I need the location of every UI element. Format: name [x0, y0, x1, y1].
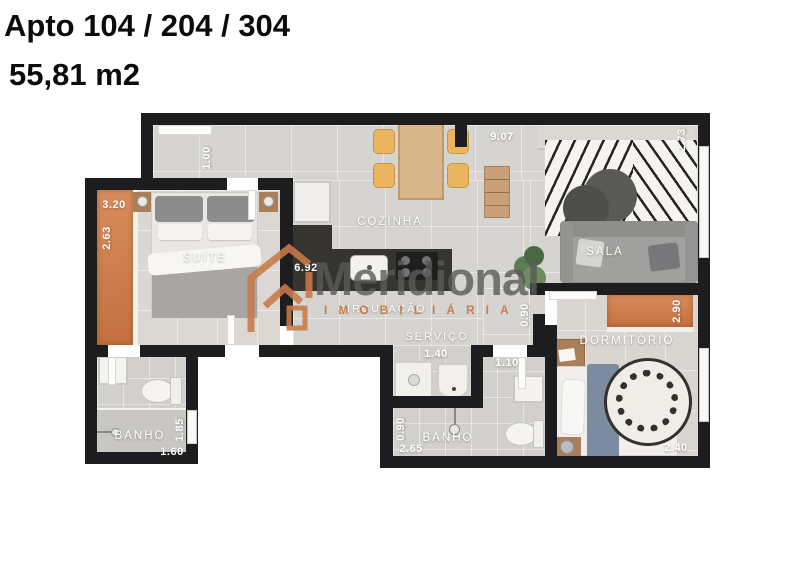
wall-laundry-inner-h	[380, 396, 483, 408]
dim-bedroom-balcony: 2.90	[671, 299, 683, 322]
room-label-kitchen: COZINHA	[357, 216, 423, 228]
shelf-line	[485, 205, 509, 206]
sofa-arm	[561, 222, 573, 282]
drain-icon	[452, 387, 456, 391]
dim-bath-social-width: 0.90	[395, 417, 407, 440]
suite-nightstand-left	[133, 192, 151, 212]
lamp-icon	[263, 196, 274, 207]
wall-suite-top	[85, 178, 293, 190]
wall-entry-left	[141, 113, 153, 180]
bed-pillow-white	[158, 224, 202, 240]
shelf-line	[485, 192, 509, 193]
watermark-tagline: IMOBILIÁRIA	[324, 303, 520, 317]
bed-pillow-dark	[155, 196, 203, 222]
dining-table	[398, 121, 444, 200]
bed-pillow-white	[208, 224, 252, 240]
suite-balcony-strip	[97, 190, 133, 345]
bedroom-balcony-glass	[607, 327, 693, 332]
rug-pattern	[616, 370, 678, 432]
suite-door-gap	[227, 178, 258, 190]
washer-door-icon	[408, 374, 420, 386]
bath-suite-door-gap	[108, 345, 140, 357]
bath-social-door-gap	[493, 345, 527, 357]
room-label-living: SALA	[586, 246, 623, 258]
bath-suite-window	[187, 410, 197, 444]
sofa-pillow	[648, 242, 681, 271]
room-label-bath-suite: BANHO	[115, 430, 166, 442]
bedroom-door-leaf	[549, 291, 597, 300]
sofa-back	[561, 222, 697, 237]
lamp-icon	[560, 440, 574, 454]
page-title: Apto 104 / 204 / 304	[4, 8, 290, 44]
lamp-icon	[137, 196, 148, 207]
wall-laundry-inner-v	[471, 345, 483, 408]
wall-bedroom-left	[545, 325, 557, 468]
bath-suite-toilet-tank	[170, 377, 182, 405]
suite-balcony-glass	[133, 190, 138, 345]
shelf-line	[485, 179, 509, 180]
bedroom-rug	[604, 358, 692, 446]
dim-living-depth: 2.73	[676, 128, 688, 151]
dim-bath-suite-length: 1.85	[174, 418, 186, 441]
bath-social-toilet-tank	[533, 420, 544, 448]
meridional-logo-icon	[243, 242, 317, 334]
watermark-brand: Meridional	[314, 251, 539, 306]
bath-suite-door-leaf	[108, 357, 116, 385]
dim-entry-width: 1.00	[201, 146, 213, 169]
bedroom-nightstand	[553, 437, 581, 458]
sofa	[560, 221, 698, 283]
dining-chair	[373, 129, 395, 154]
dining-chair	[373, 163, 395, 188]
page-subtitle-area: 55,81 m2	[9, 57, 140, 93]
bath-social-door-leaf	[518, 357, 526, 389]
hall-door-leaf	[227, 315, 235, 345]
dim-laundry-side: 1.10	[495, 357, 518, 369]
shelf-rack	[484, 166, 510, 218]
floorplan-canvas: Apto 104 / 204 / 304 55,81 m2	[0, 0, 800, 574]
room-label-bedroom: DORMITÓRIO	[580, 335, 675, 347]
wall-left	[85, 178, 97, 464]
suite-door-leaf	[248, 190, 256, 220]
living-window	[699, 146, 709, 258]
wall-top	[141, 113, 710, 125]
wall-passage-block	[533, 314, 545, 347]
wall-top-stub	[455, 113, 467, 147]
dim-bath-suite-width: 1.60	[160, 446, 183, 458]
fridge	[293, 181, 331, 223]
desk-paper	[558, 348, 576, 362]
hall-door-gap	[225, 345, 259, 357]
dim-laundry-width: 1.40	[424, 348, 447, 360]
dim-suite-width: 3.20	[102, 199, 125, 211]
dim-bath-social-length: 2.65	[399, 443, 422, 455]
entry-door	[158, 125, 212, 135]
washing-machine	[394, 361, 433, 398]
bed-pillow-white	[560, 379, 586, 436]
room-label-bath-social: BANHO	[423, 432, 474, 444]
dim-top-width: 9.07	[490, 131, 513, 143]
wall-bath-suite-right	[186, 352, 198, 464]
suite-nightstand-right	[259, 192, 278, 212]
room-label-laundry: SERVIÇO	[405, 331, 468, 343]
dining-chair	[447, 163, 469, 188]
dim-bedroom-width: 2.40	[664, 442, 687, 454]
laundry-tub	[437, 363, 469, 398]
dim-hall-width: 0.90	[519, 303, 531, 326]
dim-suite-balcony: 2.63	[101, 226, 113, 249]
wall-bath2-stub	[483, 345, 493, 357]
bedroom-window	[699, 348, 709, 422]
room-label-suite: SUÍTE	[183, 252, 227, 264]
sofa-arm	[685, 222, 697, 282]
